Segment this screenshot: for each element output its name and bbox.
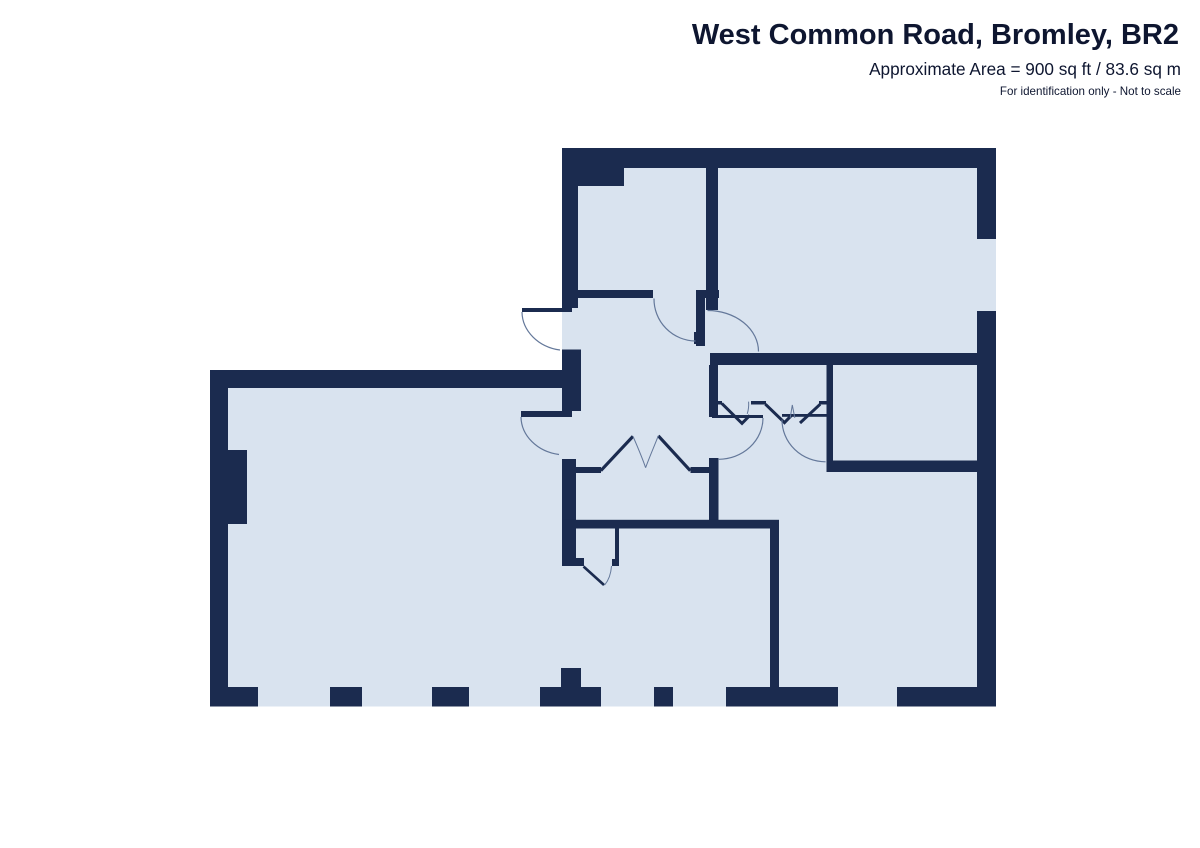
svg-text:West Common Road, Bromley, BR2: West Common Road, Bromley, BR2 <box>692 19 1179 51</box>
svg-text:For identification only - Not: For identification only - Not to scale <box>1000 85 1181 98</box>
svg-text:Approximate Area = 900 sq ft /: Approximate Area = 900 sq ft / 83.6 sq m <box>869 59 1181 79</box>
